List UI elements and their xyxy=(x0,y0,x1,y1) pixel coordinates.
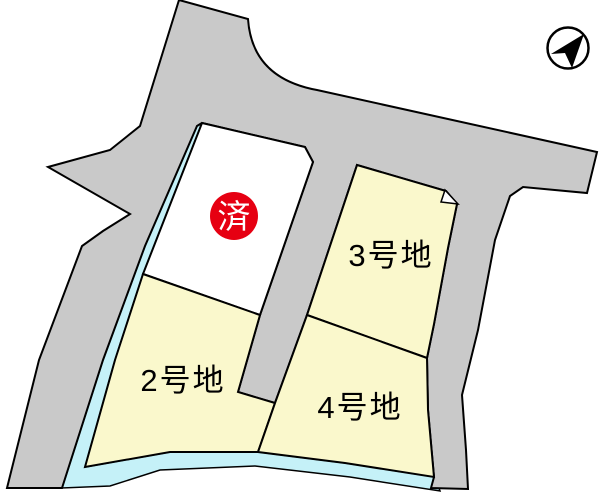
lot-map-page: 2号地 3号地 4号地 済 xyxy=(0,0,600,493)
north-arrow-icon xyxy=(548,28,589,69)
sold-badge-label: 済 xyxy=(218,198,251,235)
lot-2-label: 2号地 xyxy=(140,363,225,398)
lot-3-label: 3号地 xyxy=(348,238,433,273)
lot-4-label: 4号地 xyxy=(317,390,402,425)
lot-map: 2号地 3号地 4号地 済 xyxy=(0,0,600,493)
